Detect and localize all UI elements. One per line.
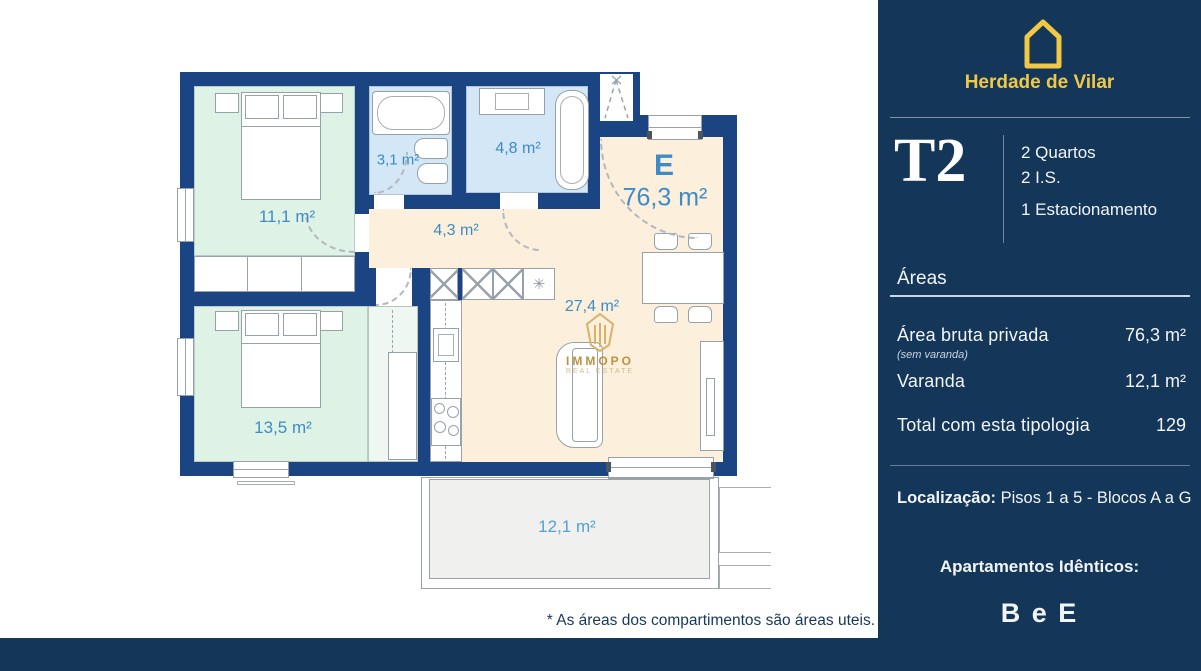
pillow [245,313,279,336]
identical-label: Apartamentos Idênticos: [878,557,1201,577]
areas-title: Áreas [897,268,947,290]
pillow [283,313,317,336]
door-hinge [606,462,611,472]
kitchen-cabinet-x [430,268,458,300]
area-row-value: 129 [1156,415,1186,436]
sliding-door-line [610,467,712,468]
label-unit-letter: E [654,149,674,183]
oven-inner [438,334,454,356]
area-row-value: 12,1 m² [1125,371,1186,392]
door-gap-bathroom-1 [374,195,404,209]
blanket-line [242,126,320,127]
door-gap-bathroom-2 [500,193,538,209]
dining-table-icon [642,252,724,304]
bidet-icon [417,163,448,184]
door-hinge [647,131,652,139]
window-line [185,189,186,241]
identical-value: B e E [878,598,1201,629]
vertical-divider [1003,135,1004,243]
kitchen-cabinet-x [493,268,523,300]
footnote: * As áreas dos compartimentos são áreas … [547,612,875,630]
neighbor-balcony-outline [719,487,771,553]
brand-name: Herdade de Vilar [878,72,1201,94]
feature-bathrooms: 2 I.S. [1021,168,1061,188]
door-hinge [711,462,716,472]
room-living-bottom [462,300,555,462]
area-row-label: Total com esta tipologia [897,415,1090,436]
area-row-note: (sem varanda) [897,349,968,361]
house-logo-icon [1023,18,1063,70]
nightstand [319,93,343,113]
area-row-label: Varanda [897,371,965,392]
nightstand [215,311,239,331]
wardrobe-divider [247,257,248,291]
shaft [600,74,633,121]
flyer-page: ✳ [0,0,1201,671]
washbasin-inner [495,93,529,110]
divider [890,117,1190,118]
window-sill [237,481,295,485]
entrance-door-line [649,127,701,128]
door-hinge [698,131,703,139]
burner [448,425,459,436]
bathtub-1-inner [377,96,445,130]
closet-cabinet [388,352,417,460]
areas-underline [890,295,1190,297]
area-row-value: 76,3 m² [1125,325,1186,346]
kitchen-cabinet-x [462,268,493,300]
label-unit-total-area: 76,3 m² [623,184,708,213]
sidebar: Herdade de Vilar T2 2 Quartos 2 I.S. 1 E… [878,0,1201,671]
feature-parking: 1 Estacionamento [1021,200,1157,220]
shaft-dashed-lines [600,74,633,121]
label-bedroom-1-area: 11,1 m² [259,207,315,227]
balcony-sliding-door [608,457,714,479]
location-value: Pisos 1 a 5 - Blocos A a G [1001,489,1192,507]
nightstand [215,93,239,113]
label-bedroom-2-area: 13,5 m² [254,418,312,438]
burner [447,406,459,418]
pillow [245,95,279,119]
watermark-subtitle: REAL ESTATE [565,368,635,375]
label-hall-area: 4,3 m² [433,222,478,240]
window-line [185,339,186,395]
location-line: Localização: Pisos 1 a 5 - Blocos A a G [897,489,1191,508]
chair [654,306,678,323]
area-row-label: Área bruta privada [897,325,1049,346]
label-bathroom-2-area: 4,8 m² [495,140,540,158]
nightstand [319,311,343,331]
location-label: Localização: [897,489,996,507]
immopo-logo-icon [584,312,616,352]
burner [434,403,445,414]
divider [890,465,1190,466]
blanket-line [242,343,320,344]
wardrobe-divider [301,257,302,291]
label-bathroom-1-area: 3,1 m² [377,152,420,169]
burner [434,421,446,433]
typology-code: T2 [894,126,966,197]
window-line [234,469,288,470]
feature-bedrooms: 2 Quartos [1021,143,1096,163]
bathtub-2-inner [560,96,584,184]
watermark-title: IMMOPO [565,354,635,368]
kitchen-sink-icon: ✳ [523,268,555,300]
label-balcony-area: 12,1 m² [538,517,596,537]
wardrobe-bedroom-1 [194,256,355,292]
neighbor-balcony-outline [719,565,771,589]
door-gap-bedroom-1 [355,214,369,252]
tv-icon [706,378,715,436]
chair [688,306,712,323]
pillow [283,95,317,119]
watermark: IMMOPO REAL ESTATE [565,312,635,375]
